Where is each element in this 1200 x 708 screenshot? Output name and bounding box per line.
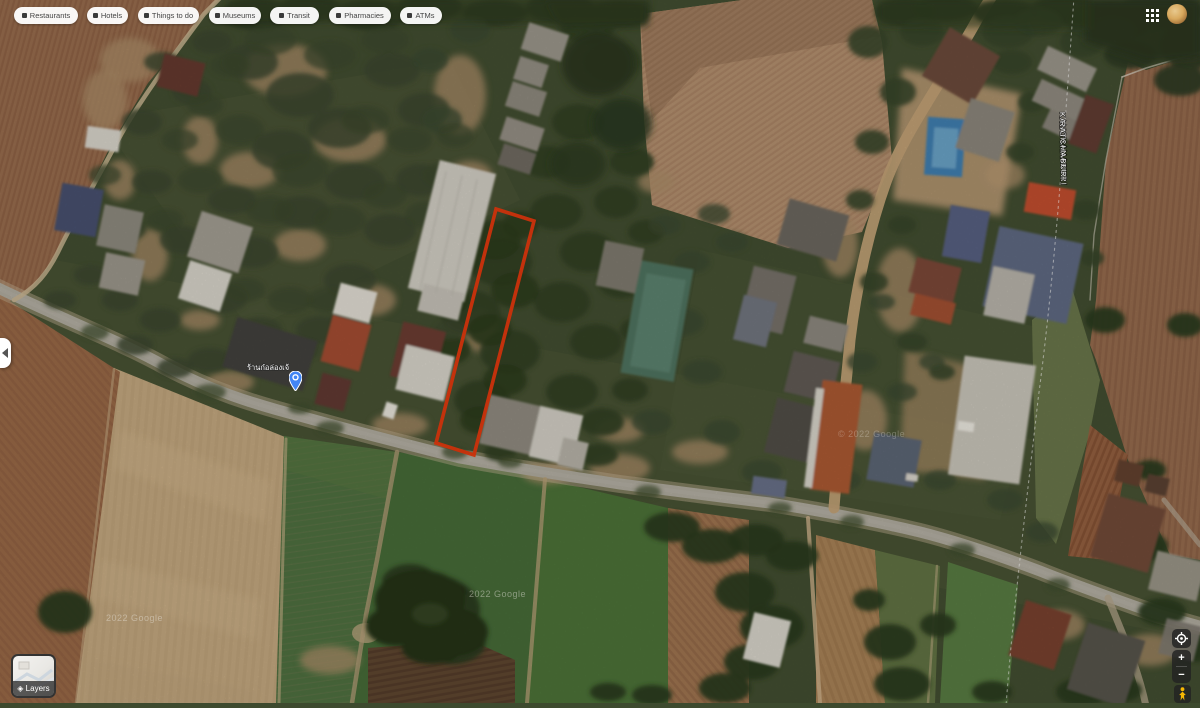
svg-text:RATCHABURI: RATCHABURI (1058, 121, 1068, 181)
svg-text:2022 Google: 2022 Google (469, 589, 526, 599)
svg-text:2022 Google: 2022 Google (106, 613, 163, 623)
svg-text:ร้านก๋อล่องเจ้: ร้านก๋อล่องเจ้ (247, 363, 289, 372)
svg-text:© 2022 Google: © 2022 Google (838, 429, 905, 439)
